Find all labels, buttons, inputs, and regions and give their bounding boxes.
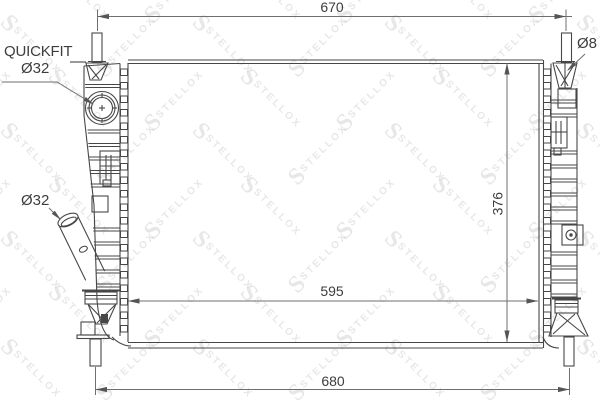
right-bottom-pin bbox=[564, 337, 574, 366]
dim-595-label: 595 bbox=[302, 284, 362, 299]
right-bottom-outlet bbox=[549, 299, 588, 337]
quickfit-diameter-label: Ø32 bbox=[21, 61, 49, 78]
right-connector-block bbox=[562, 225, 583, 245]
left-tank bbox=[56, 33, 131, 366]
quickfit-port bbox=[86, 92, 119, 125]
radiator-line-drawing bbox=[0, 0, 600, 400]
quickfit-label: QUICKFIT bbox=[4, 44, 72, 61]
dim-680-label: 680 bbox=[302, 374, 364, 389]
left-bottom-pin bbox=[90, 339, 101, 366]
pin-diameter-label: Ø8 bbox=[577, 36, 597, 53]
right-clip-detail bbox=[551, 117, 567, 155]
dim-670-label: 670 bbox=[302, 0, 362, 15]
outlet-diameter-label: Ø32 bbox=[21, 193, 49, 210]
dim-376-label: 376 bbox=[490, 183, 505, 225]
radiator-core bbox=[128, 60, 544, 348]
radiator-technical-drawing: SSTELLOXSSTELLOXSSTELLOXSSTELLOXSSTELLOX… bbox=[0, 0, 600, 400]
right-top-pin bbox=[562, 33, 572, 62]
left-clip-detail bbox=[100, 151, 120, 186]
left-top-pin bbox=[92, 33, 102, 62]
left-bottom-outlet bbox=[82, 291, 121, 325]
